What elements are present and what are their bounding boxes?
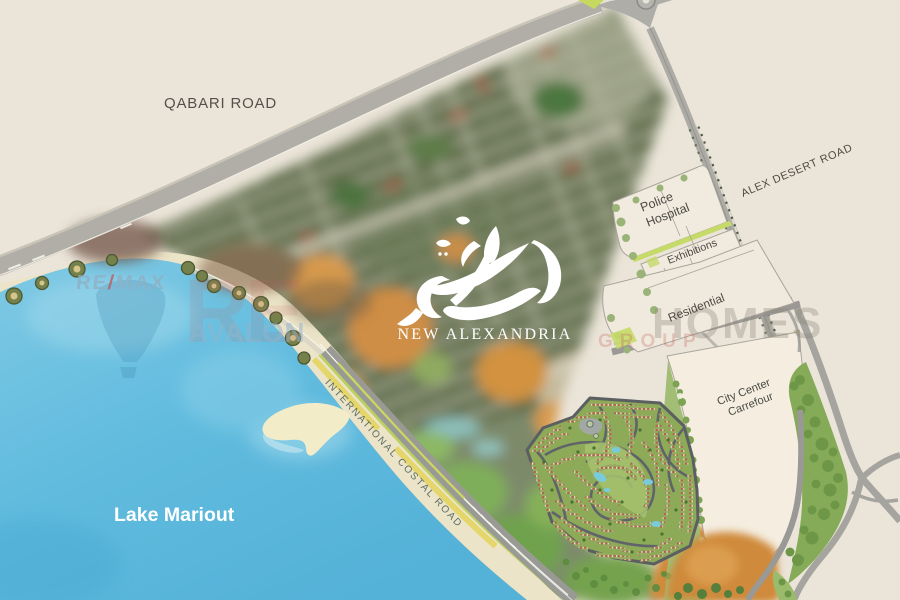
- svg-text:NEW ALEXANDRIA: NEW ALEXANDRIA: [398, 326, 573, 343]
- svg-text:Lake Mariout: Lake Mariout: [114, 504, 235, 526]
- svg-text:RE/MAX: RE/MAX: [75, 272, 167, 294]
- svg-text:QABARI ROAD: QABARI ROAD: [164, 95, 277, 112]
- svg-text:GROUP: GROUP: [598, 331, 703, 352]
- svg-text:AVALON: AVALON: [188, 317, 305, 348]
